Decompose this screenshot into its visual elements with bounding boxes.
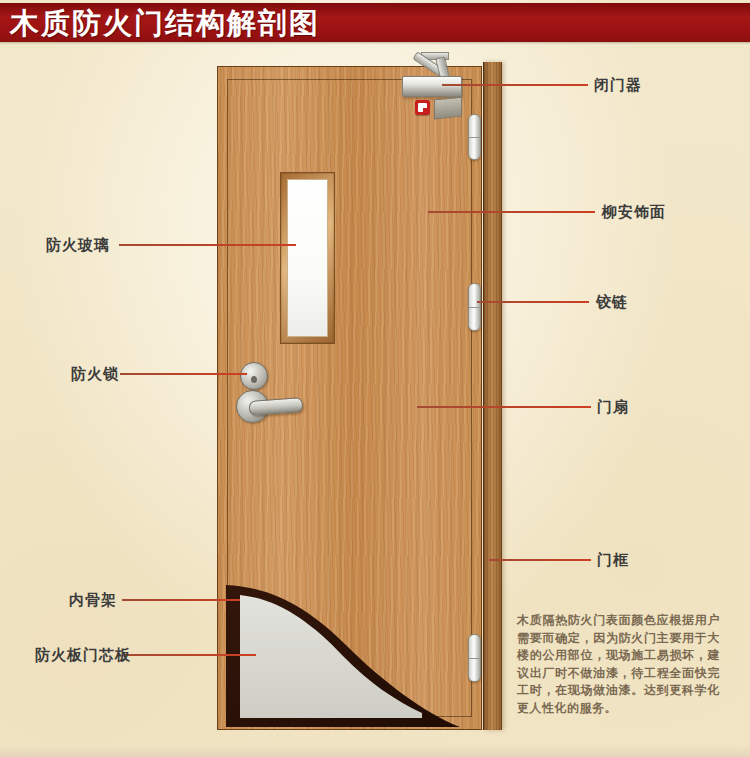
label-door-closer: 闭门器	[594, 76, 642, 95]
hinge-top	[468, 114, 481, 160]
cutaway-svg	[218, 575, 480, 728]
leader-line-door-frame	[489, 559, 591, 561]
leader-line-lauan-veneer	[428, 211, 595, 213]
leader-line-door-closer	[442, 84, 588, 86]
label-door-leaf: 门扇	[597, 398, 629, 417]
hinge-middle	[468, 283, 481, 331]
lock-cylinder	[240, 362, 268, 390]
label-hinge: 铰链	[596, 293, 628, 312]
label-fire-board-core: 防火板门芯板	[35, 646, 131, 665]
leader-line-inner-skeleton	[122, 599, 240, 601]
label-lauan-veneer: 柳安饰面	[602, 203, 666, 222]
label-fire-lock: 防火锁	[71, 365, 119, 384]
label-door-frame: 门框	[597, 551, 629, 570]
page-title: 木质防火门结构解剖图	[10, 4, 320, 42]
cutaway-section	[218, 575, 480, 728]
leader-line-fire-lock	[120, 373, 247, 375]
leader-line-fire-glass	[119, 244, 296, 246]
leader-line-fire-board-core	[124, 654, 256, 656]
label-fire-glass: 防火玻璃	[46, 236, 110, 255]
fire-glass-panel	[287, 179, 328, 337]
product-note: 木质隔热防火门表面颜色应根据用户需要而确定，因为防火门主要用于大楼的公用部位，现…	[517, 612, 720, 717]
glass-bevel-frame	[280, 172, 335, 344]
door-frame-graphic	[483, 62, 502, 730]
bottom-edge-tint	[0, 745, 750, 757]
label-inner-skeleton: 内骨架	[69, 591, 117, 610]
leader-line-hinge	[477, 301, 589, 303]
door-closer-body	[402, 76, 462, 97]
diagram-canvas: 木质防火门结构解剖图	[0, 0, 750, 757]
fire-cert-badge	[415, 100, 430, 115]
hinge-bottom	[468, 634, 481, 682]
keyhole-icon	[251, 376, 257, 383]
door-name-plate	[434, 97, 462, 120]
title-banner: 木质防火门结构解剖图	[0, 3, 750, 42]
leader-line-door-leaf	[417, 406, 591, 408]
core-board-graphic	[240, 595, 422, 718]
